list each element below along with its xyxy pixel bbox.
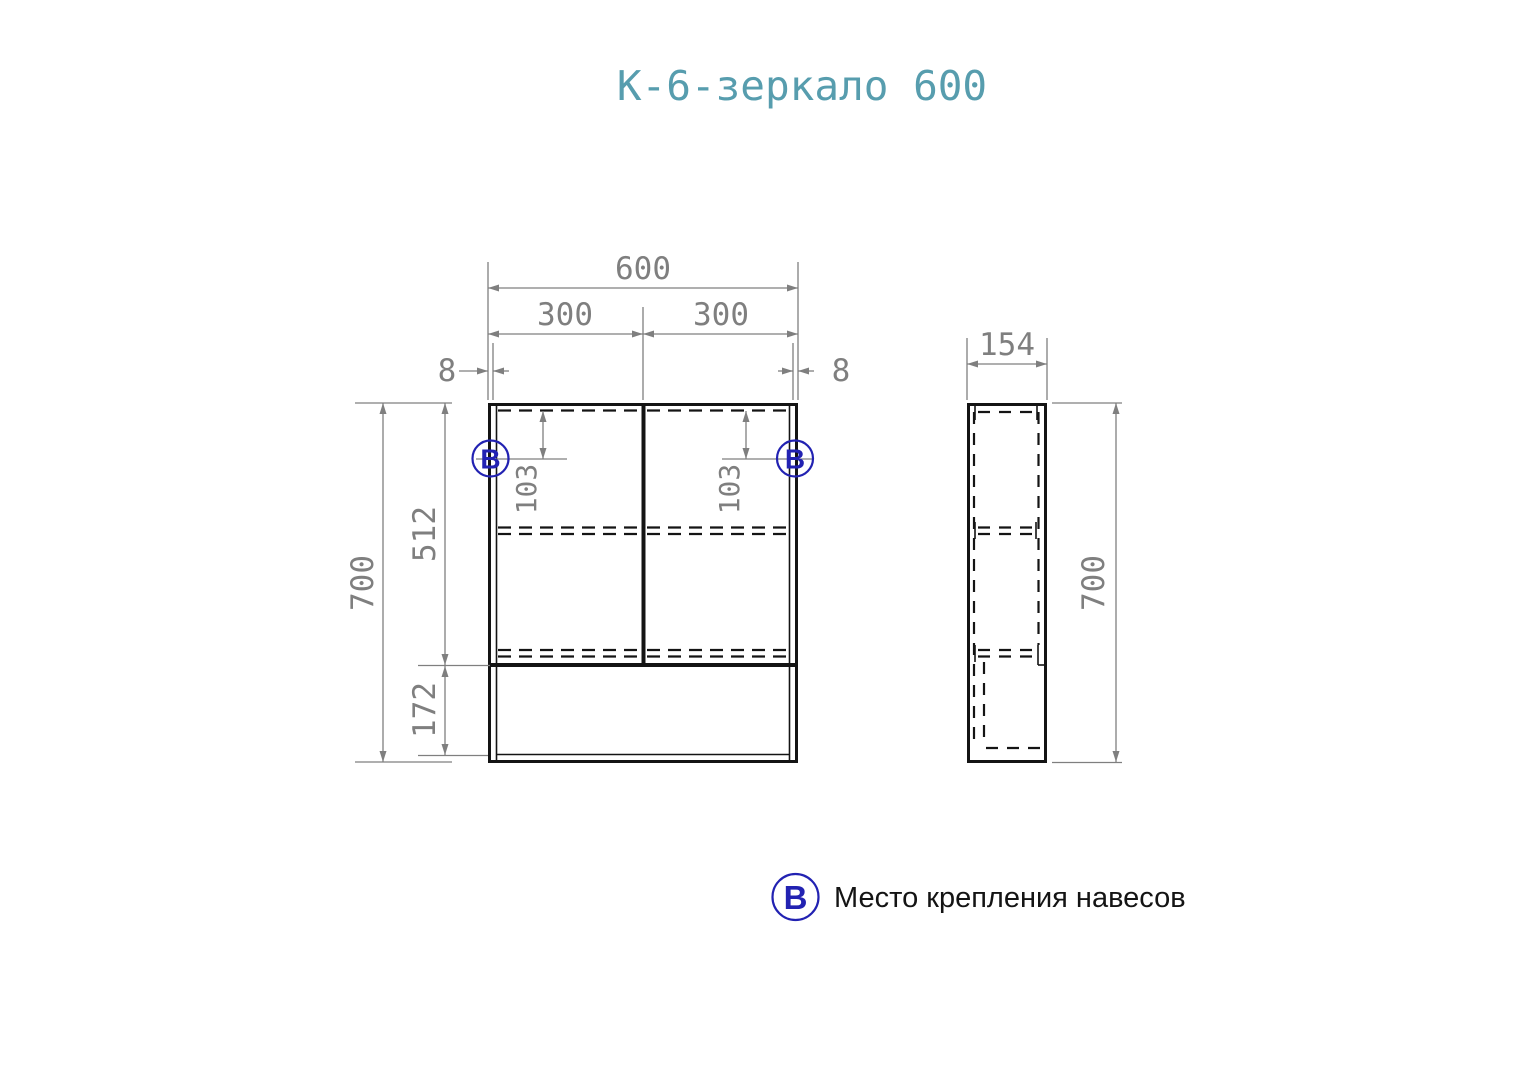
drawing-title: К-6-зеркало 600 <box>617 62 987 110</box>
dim-depth: 154 <box>979 327 1035 363</box>
dim-left-hinge-offset: 103 <box>510 464 543 515</box>
legend-marker-label: В <box>784 879 808 916</box>
dim-bottom-niche-height: 172 <box>407 682 443 738</box>
dim-total-height: 700 <box>345 555 381 611</box>
dim-right-door-width: 300 <box>693 297 749 333</box>
drawing-page: К-6-зеркало 600 <box>0 0 1528 1080</box>
dim-left-edge-offset: 8 <box>438 353 457 389</box>
legend-label: Место крепления навесов <box>834 882 1186 914</box>
attachment-marker-label: В <box>785 444 805 475</box>
front-view-dimensions: 600 300 300 8 8 700 5 <box>345 251 850 762</box>
dim-right-hinge-offset: 103 <box>713 464 746 515</box>
attachment-marker-label: В <box>480 444 500 475</box>
side-outline <box>969 405 1046 762</box>
technical-drawing: К-6-зеркало 600 <box>0 0 1528 1080</box>
dim-side-total-height: 700 <box>1076 555 1112 611</box>
dim-right-edge-offset: 8 <box>832 353 851 389</box>
side-view <box>969 405 1047 762</box>
dim-left-door-width: 300 <box>537 297 593 333</box>
dim-door-section-height: 512 <box>407 506 443 562</box>
dim-total-width: 600 <box>615 251 671 287</box>
legend: В Место крепления навесов <box>773 874 1186 920</box>
front-view <box>490 405 797 762</box>
